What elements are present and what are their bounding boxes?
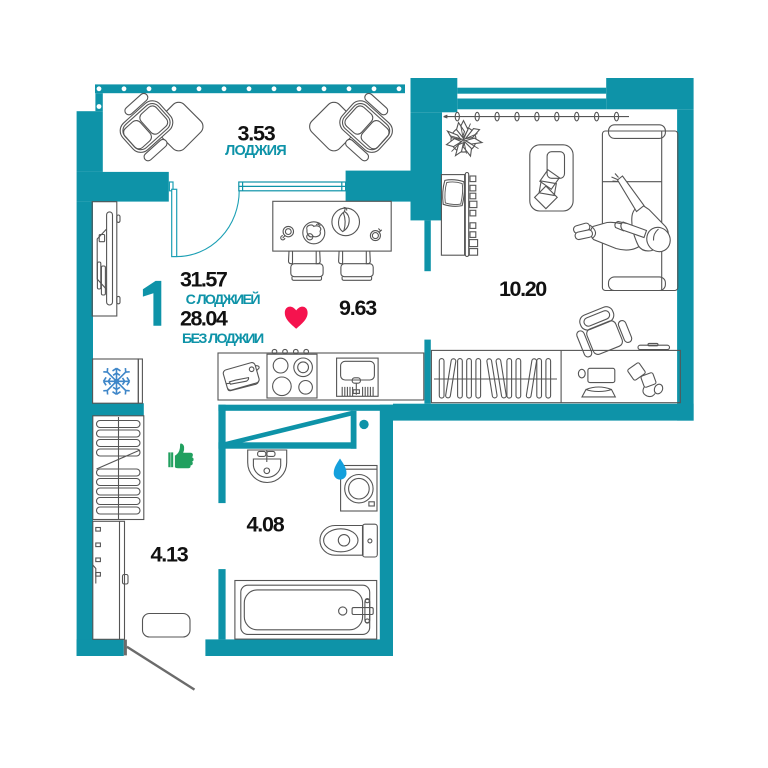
svg-text:ЛОДЖИЯ: ЛОДЖИЯ [225,143,286,159]
svg-text:3.53: 3.53 [237,121,275,145]
svg-text:9.63: 9.63 [339,296,377,320]
svg-text:4.08: 4.08 [247,513,285,537]
svg-text:31.57: 31.57 [180,268,228,292]
svg-text:28.04: 28.04 [180,307,228,331]
svg-text:10.20: 10.20 [499,277,547,301]
svg-text:С ЛОДЖИЕЙ: С ЛОДЖИЕЙ [186,290,261,308]
svg-text:БЕЗ ЛОДЖИИ: БЕЗ ЛОДЖИИ [182,331,264,347]
svg-text:4.13: 4.13 [151,543,189,567]
